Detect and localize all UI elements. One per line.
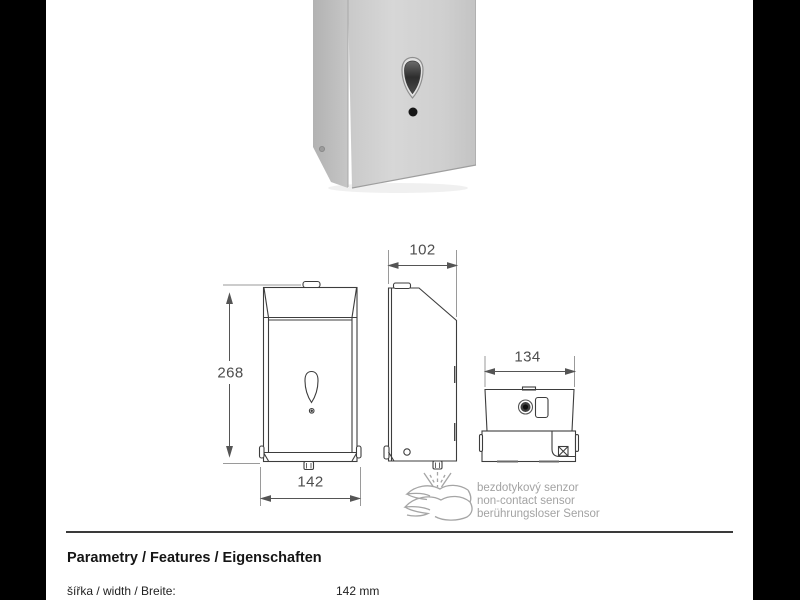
front-view-drawing	[260, 282, 362, 470]
side-screw-hole	[404, 449, 410, 455]
top-lock-tab	[303, 282, 320, 288]
side-view-drawing	[384, 283, 457, 469]
page-graphics	[0, 0, 800, 600]
front-outline	[264, 288, 358, 462]
product-photo	[313, 0, 476, 193]
sensor-caption-en: non-contact sensor	[477, 495, 600, 508]
sensor-aperture	[536, 398, 549, 418]
sensor-caption-cs: bezdotykový senzor	[477, 482, 600, 495]
spec-row-width-label: šířka / width / Breite:	[67, 584, 176, 598]
spec-row-width-value: 142 mm	[336, 584, 379, 598]
dimension-label-width: 142	[297, 474, 323, 491]
bottom-upper-section	[485, 390, 574, 432]
section-divider	[66, 531, 733, 533]
right-clip	[357, 446, 362, 458]
side-screw	[319, 146, 324, 151]
dimension-label-depth: 102	[409, 241, 435, 258]
left-clip	[260, 446, 265, 458]
side-outline	[389, 288, 457, 461]
hand-sensor-icon	[405, 472, 472, 520]
specs-heading: Parametry / Features / Eigenschaften	[67, 550, 322, 566]
photo-sensor-dot	[409, 108, 418, 117]
bottom-view-drawing	[480, 387, 579, 462]
sensor-caption-de: berührungsloser Sensor	[477, 508, 600, 521]
dispenser-left-face	[313, 0, 348, 188]
bottom-left-tab	[480, 435, 483, 452]
dimension-label-height: 268	[217, 364, 243, 381]
sensor-caption: bezdotykový senzor non-contact sensor be…	[477, 482, 600, 521]
dimension-label-bottom-width: 134	[514, 348, 540, 365]
front-sight-window	[305, 372, 318, 403]
side-nozzle	[433, 461, 442, 469]
bottom-right-tab	[576, 435, 579, 452]
side-top-tab	[394, 283, 411, 289]
front-nozzle	[304, 462, 314, 470]
screenshot-root: 268 142 102 134 bezdotykový senzor non-c…	[0, 0, 800, 600]
photo-shadow	[328, 183, 468, 193]
